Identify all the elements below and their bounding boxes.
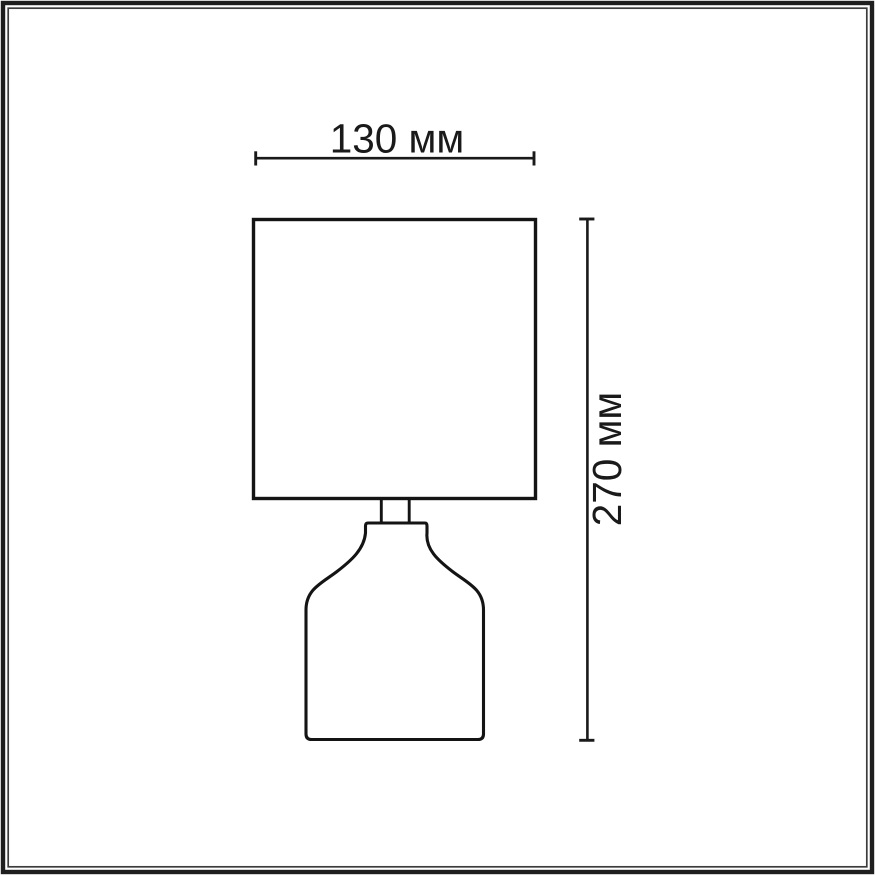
svg-text:130 мм: 130 мм <box>330 116 465 162</box>
svg-text:270 мм: 270 мм <box>584 392 630 527</box>
